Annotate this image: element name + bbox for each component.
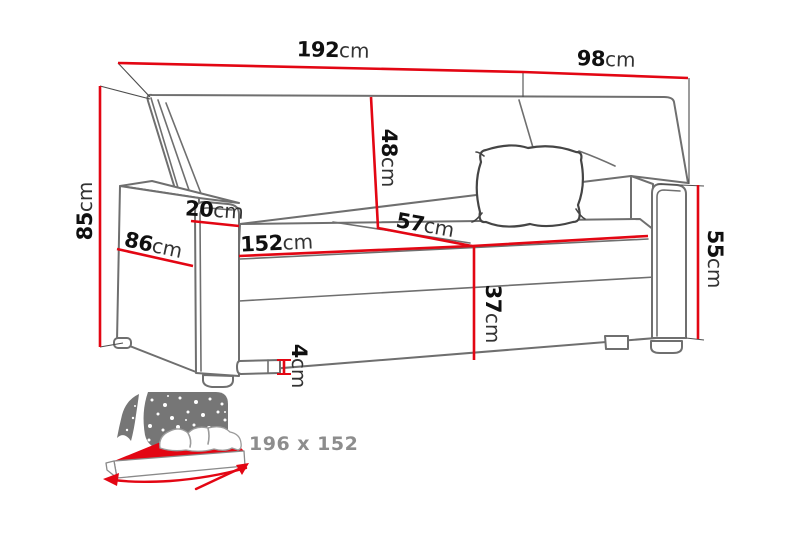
diagram-canvas: 192cm 98cm 85cm 86cm 20cm 152cm 57cm 48c… (0, 0, 800, 533)
label-total-depth: 98cm (577, 46, 636, 72)
label-total-width: 192cm (296, 37, 369, 63)
bed-size-label: 196 x 152 (249, 433, 358, 455)
label-armrest-height: 55cm (703, 230, 727, 289)
label-seat-width: 152cm (240, 229, 314, 256)
label-leg-height: 4cm (287, 344, 311, 389)
label-backrest-height: 48cm (377, 129, 401, 188)
pillow (477, 145, 583, 226)
right-armrest-leg (651, 341, 682, 353)
label-seat-height: 37cm (481, 285, 505, 344)
label-armrest-width: 20cm (184, 196, 244, 224)
label-total-height: 85cm (73, 182, 97, 241)
sofa-dimension-diagram: 192cm 98cm 85cm 86cm 20cm 152cm 57cm 48c… (0, 0, 800, 533)
width-arrowhead (103, 473, 119, 486)
front-right-leg (605, 336, 628, 349)
front-left-leg (237, 360, 280, 374)
bed-function-icon: 196 x 152 (103, 392, 358, 489)
blanket (160, 427, 241, 452)
left-armrest-leg (203, 375, 233, 387)
night-sky-sliver (117, 394, 139, 441)
